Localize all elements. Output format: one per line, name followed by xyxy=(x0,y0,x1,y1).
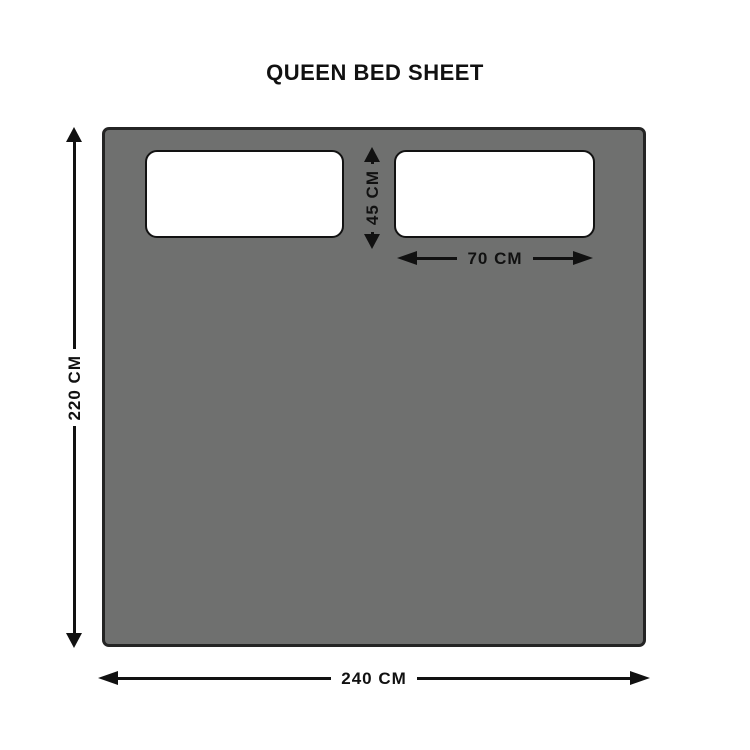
arrow-up-icon xyxy=(364,147,380,162)
arrow-right-icon xyxy=(573,251,593,265)
dimension-line xyxy=(73,426,76,633)
dimension-pillow-height: 45 CM xyxy=(357,147,387,249)
diagram-title: QUEEN BED SHEET xyxy=(0,60,750,86)
dimension-line xyxy=(417,257,457,260)
pillow-cutout-left xyxy=(145,150,344,238)
dimension-line xyxy=(118,677,331,680)
arrow-left-icon xyxy=(397,251,417,265)
dimension-label-sheet-height: 220 CM xyxy=(66,355,83,421)
dimension-pillow-width: 70 CM xyxy=(397,245,593,271)
dimension-sheet-width: 240 CM xyxy=(98,664,650,692)
dimension-line xyxy=(371,162,374,164)
pillow-cutout-right xyxy=(394,150,595,238)
dimension-line xyxy=(417,677,630,680)
arrow-down-icon xyxy=(364,234,380,249)
arrow-right-icon xyxy=(630,671,650,685)
arrow-down-icon xyxy=(66,633,82,648)
dimension-line xyxy=(73,142,76,349)
dimension-sheet-height: 220 CM xyxy=(59,127,89,648)
dimension-line xyxy=(533,257,573,260)
arrow-left-icon xyxy=(98,671,118,685)
dimension-label-pillow-width: 70 CM xyxy=(467,250,522,267)
dimension-label-sheet-width: 240 CM xyxy=(341,670,407,687)
arrow-up-icon xyxy=(66,127,82,142)
dimension-label-pillow-height: 45 CM xyxy=(364,170,381,225)
diagram-canvas: QUEEN BED SHEET 220 CM 240 CM 45 CM 70 C… xyxy=(0,0,750,750)
